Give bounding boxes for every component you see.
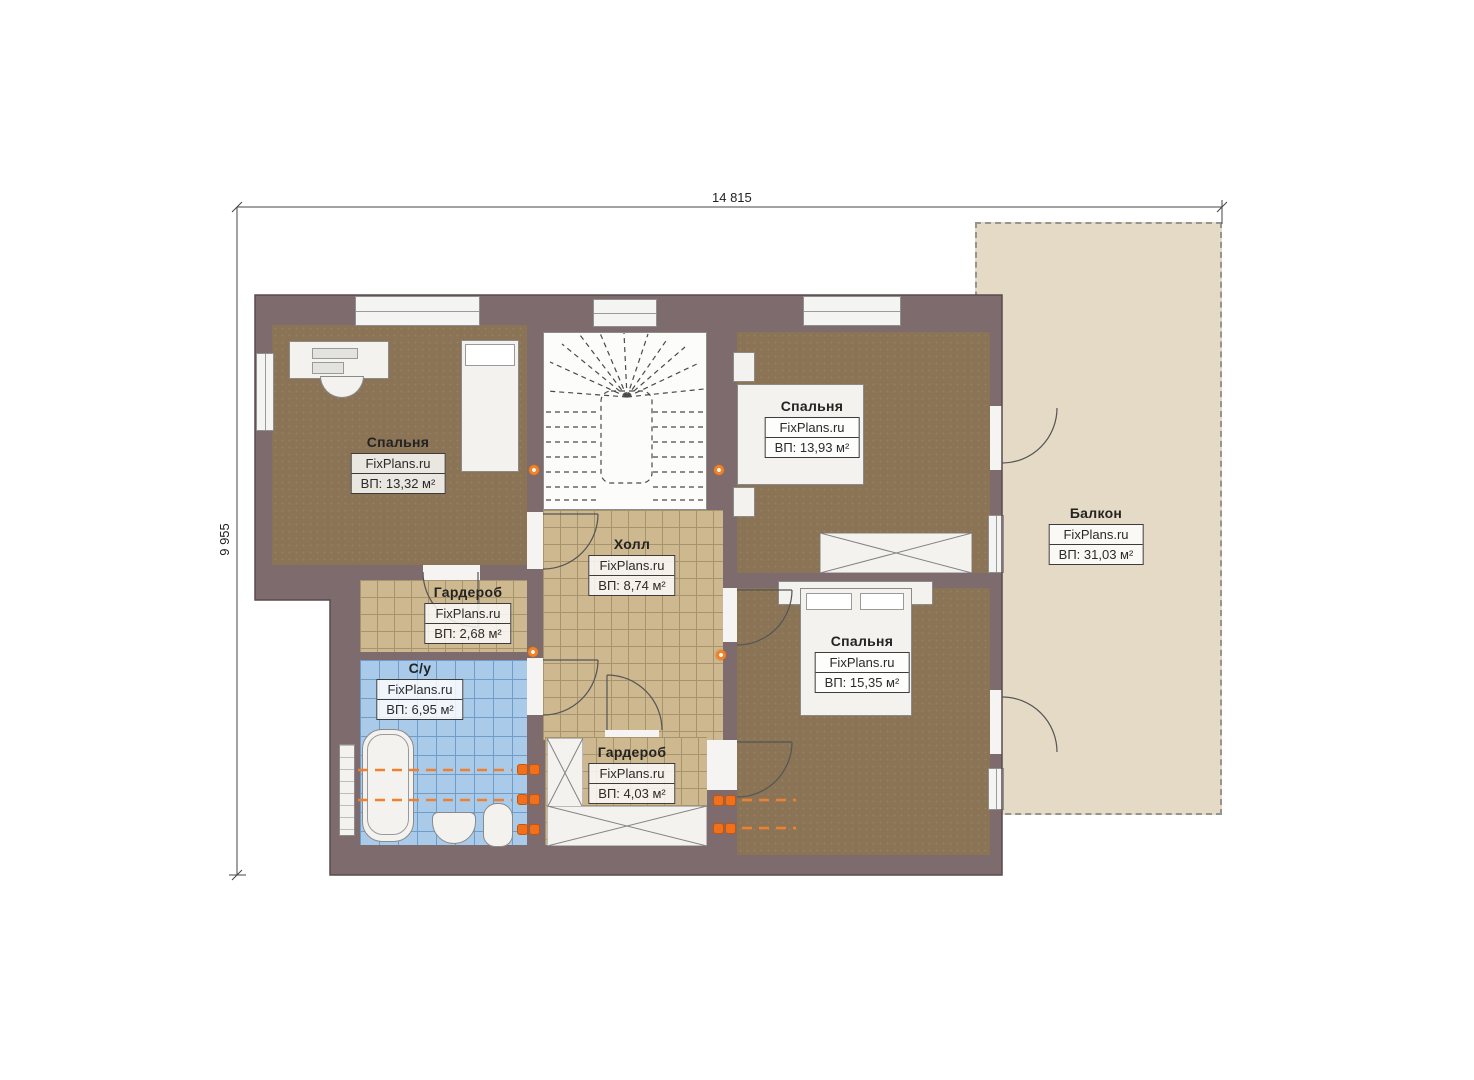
room-label-wardrobe-bottom: Гардероб FixPlans.ru ВП: 4,03 м² bbox=[588, 744, 675, 804]
room-info-box: FixPlans.ru ВП: 2,68 м² bbox=[424, 603, 511, 644]
watermark-text: FixPlans.ru bbox=[1050, 525, 1143, 545]
watermark-text: FixPlans.ru bbox=[589, 556, 674, 576]
room-area: ВП: 13,93 м² bbox=[766, 438, 859, 457]
radiator-icon bbox=[529, 794, 540, 805]
room-label-bathroom: С/у FixPlans.ru ВП: 6,95 м² bbox=[376, 660, 463, 720]
room-label-hall: Холл FixPlans.ru ВП: 8,74 м² bbox=[588, 536, 675, 596]
room-area: ВП: 2,68 м² bbox=[425, 624, 510, 643]
floor-plan: 14 815 9 955 Спальня FixPlans.ru ВП: 13,… bbox=[0, 0, 1474, 1080]
room-info-box: FixPlans.ru ВП: 15,35 м² bbox=[815, 652, 910, 693]
radiator-icon bbox=[725, 823, 736, 834]
radiator-icon bbox=[725, 795, 736, 806]
room-label-bedroom-top: Спальня FixPlans.ru ВП: 13,93 м² bbox=[765, 398, 860, 458]
watermark-text: FixPlans.ru bbox=[589, 764, 674, 784]
radiator-icon bbox=[529, 824, 540, 835]
room-name: Холл bbox=[588, 536, 675, 552]
room-info-box: FixPlans.ru ВП: 31,03 м² bbox=[1049, 524, 1144, 565]
radiator-icon bbox=[517, 764, 528, 775]
room-label-bedroom-right: Спальня FixPlans.ru ВП: 15,35 м² bbox=[815, 633, 910, 693]
room-area: ВП: 6,95 м² bbox=[377, 700, 462, 719]
radiator-icon bbox=[713, 823, 724, 834]
room-name: Гардероб bbox=[588, 744, 675, 760]
room-info-box: FixPlans.ru ВП: 13,93 м² bbox=[765, 417, 860, 458]
room-area: ВП: 15,35 м² bbox=[816, 673, 909, 692]
watermark-text: FixPlans.ru bbox=[352, 454, 445, 474]
room-name: Спальня bbox=[815, 633, 910, 649]
watermark-text: FixPlans.ru bbox=[377, 680, 462, 700]
light-point-icon bbox=[528, 647, 538, 657]
watermark-text: FixPlans.ru bbox=[425, 604, 510, 624]
radiator-icon bbox=[517, 794, 528, 805]
room-area: ВП: 31,03 м² bbox=[1050, 545, 1143, 564]
room-label-wardrobe-left: Гардероб FixPlans.ru ВП: 2,68 м² bbox=[424, 584, 511, 644]
room-info-box: FixPlans.ru ВП: 8,74 м² bbox=[588, 555, 675, 596]
radiator-icon bbox=[529, 764, 540, 775]
watermark-text: FixPlans.ru bbox=[816, 653, 909, 673]
room-name: Спальня bbox=[765, 398, 860, 414]
room-label-bedroom-top-left: Спальня FixPlans.ru ВП: 13,32 м² bbox=[351, 434, 446, 494]
room-area: ВП: 4,03 м² bbox=[589, 784, 674, 803]
room-info-box: FixPlans.ru ВП: 6,95 м² bbox=[376, 679, 463, 720]
watermark-text: FixPlans.ru bbox=[766, 418, 859, 438]
room-name: С/у bbox=[376, 660, 463, 676]
dimension-width-label: 14 815 bbox=[712, 190, 752, 205]
light-point-icon bbox=[714, 465, 724, 475]
light-point-icon bbox=[716, 650, 726, 660]
room-name: Гардероб bbox=[424, 584, 511, 600]
radiator-icon bbox=[713, 795, 724, 806]
light-point-icon bbox=[529, 465, 539, 475]
room-info-box: FixPlans.ru ВП: 4,03 м² bbox=[588, 763, 675, 804]
room-area: ВП: 8,74 м² bbox=[589, 576, 674, 595]
room-info-box: FixPlans.ru ВП: 13,32 м² bbox=[351, 453, 446, 494]
room-name: Спальня bbox=[351, 434, 446, 450]
room-area: ВП: 13,32 м² bbox=[352, 474, 445, 493]
room-name: Балкон bbox=[1049, 505, 1144, 521]
room-label-balcony: Балкон FixPlans.ru ВП: 31,03 м² bbox=[1049, 505, 1144, 565]
dimension-height-label: 9 955 bbox=[217, 523, 232, 556]
radiator-icon bbox=[517, 824, 528, 835]
